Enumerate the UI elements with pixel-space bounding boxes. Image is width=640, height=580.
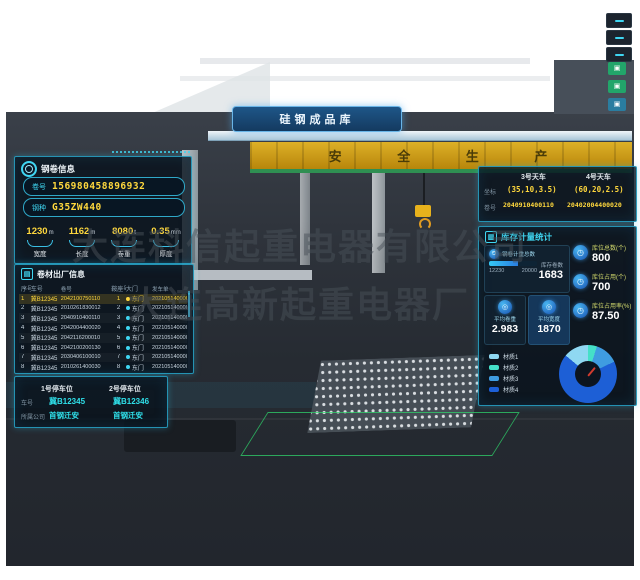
stat-unit: t bbox=[134, 230, 136, 236]
table-row[interactable]: 8冀B1234520102614000308东门2021051400001 bbox=[19, 362, 187, 372]
coil-stat-weight: 8080t 卷重 bbox=[103, 221, 145, 258]
crane-coil: 2040910400110 bbox=[503, 201, 554, 209]
coil-icon: ◎ bbox=[542, 300, 556, 314]
coil-info-panel: 钢卷信息 卷号 156980458896932 钢种 G35ZW440 1230… bbox=[14, 156, 192, 264]
stat-value: 1230 bbox=[26, 226, 47, 237]
table-cell: 冀B12345 bbox=[31, 324, 61, 333]
table-cell: 2010261400030 bbox=[61, 364, 111, 370]
field-label: 钢种 bbox=[32, 203, 46, 213]
legend-swatch bbox=[489, 354, 499, 359]
row-label: 所属公司 bbox=[21, 412, 45, 421]
coil-stat-thickness: 0.35mm 厚度 bbox=[145, 221, 187, 258]
table-cell: 4 bbox=[19, 325, 31, 331]
count-value: 1683 bbox=[537, 269, 563, 281]
stat-unit: m bbox=[49, 230, 54, 236]
avg-weight-card: ◎ 平均卷重 2.983 bbox=[484, 295, 526, 345]
material-donut-chart bbox=[559, 345, 617, 403]
bar-chart-icon: ▥ bbox=[485, 231, 497, 243]
table-cell: 2042116200010 bbox=[61, 335, 111, 341]
table-cell: 东门 bbox=[126, 363, 152, 372]
stat-value: 700 bbox=[592, 281, 626, 293]
table-cell: 2021051400001 bbox=[152, 354, 187, 360]
count-label: 库存卷数 bbox=[537, 261, 563, 269]
stat-value: 87.50 bbox=[592, 310, 631, 322]
scene-marker-icon[interactable]: ▣ bbox=[608, 98, 626, 111]
arc-gauge-icon bbox=[69, 240, 95, 247]
toolbar-button[interactable] bbox=[606, 47, 632, 62]
legend-label: 材质3 bbox=[503, 374, 518, 383]
avg-width-card: ◎ 平均宽度 1870 bbox=[528, 295, 570, 345]
coil-weight-card: ⏲ 钢卷计重总数 12230 20000 库存卷数 1683 bbox=[484, 245, 570, 293]
stat-unit: mm bbox=[171, 230, 181, 236]
clock-icon: ◷ bbox=[573, 274, 588, 289]
menu-icon bbox=[615, 20, 624, 22]
stat-unit: m bbox=[90, 230, 95, 236]
slot-title: 1号停车位 bbox=[41, 384, 73, 394]
clipboard-icon: ▤ bbox=[21, 268, 33, 280]
card-value: 2.983 bbox=[485, 323, 525, 335]
table-cell: 冀B12345 bbox=[31, 314, 61, 323]
scrollbar-thumb[interactable] bbox=[188, 291, 191, 317]
arc-gauge-icon bbox=[27, 240, 53, 247]
table-cell: 3 bbox=[111, 315, 126, 321]
table-cell: 东门 bbox=[126, 353, 152, 362]
table-cell: 2040910400110 bbox=[61, 315, 111, 321]
weight-icon: ⏲ bbox=[489, 249, 499, 259]
col-header: 鞍座号 bbox=[111, 284, 126, 293]
table-cell: 2 bbox=[111, 305, 126, 311]
table-cell: 7 bbox=[19, 354, 31, 360]
legend-swatch bbox=[489, 376, 499, 381]
table-cell: 东门 bbox=[126, 294, 152, 303]
arc-gauge-icon bbox=[111, 240, 137, 247]
panel-decoration bbox=[112, 151, 190, 153]
table-row[interactable]: 4冀B1234520420044000204东门2021051400001 bbox=[19, 323, 187, 333]
table-cell: 冀B12345 bbox=[31, 333, 61, 342]
stat-label: 库位占用率(%) bbox=[592, 301, 631, 310]
storage-zone-outline bbox=[240, 412, 519, 456]
col-header: 大门 bbox=[126, 284, 152, 293]
stat-value: 8080 bbox=[112, 226, 133, 237]
parking-panel: 1号停车位 2号停车位 车号 所属公司 冀B12345 冀B12346 首钢迁安… bbox=[14, 376, 168, 428]
clock-icon: ◷ bbox=[573, 245, 588, 260]
slot-total-stat: ◷ 库位总数(个) 800 bbox=[573, 243, 633, 264]
table-cell: 2021051400001 bbox=[152, 296, 187, 302]
crane-name: 4号天车 bbox=[586, 172, 611, 182]
arc-gauge-icon bbox=[153, 240, 179, 247]
clock-icon: ◷ bbox=[573, 303, 588, 318]
stat-value: 800 bbox=[592, 252, 626, 264]
crane-coil: 20402004400020 bbox=[567, 201, 622, 209]
legend-item: 材质1 bbox=[489, 351, 518, 362]
table-cell: 5 bbox=[19, 335, 31, 341]
table-cell: 2021051400001 bbox=[152, 325, 187, 331]
legend-label: 材质2 bbox=[503, 363, 518, 372]
crane-name: 3号天车 bbox=[521, 172, 546, 182]
company-value: 首钢迁安 bbox=[49, 410, 79, 421]
col-header: 车号 bbox=[31, 284, 61, 293]
banner-title: 硅钢成品库 bbox=[280, 111, 355, 127]
table-cell: 2021051400001 bbox=[152, 345, 187, 351]
table-row[interactable]: 3冀B1234520409104001103东门2021051400001 bbox=[19, 313, 187, 323]
scene-marker-icon[interactable]: ▣ bbox=[608, 80, 626, 93]
location-pin-icon bbox=[126, 316, 130, 320]
table-cell: 2030406100010 bbox=[61, 354, 111, 360]
table-cell: 冀B12345 bbox=[31, 343, 61, 352]
table-cell: 冀B12345 bbox=[31, 353, 61, 362]
plate-value: 冀B12346 bbox=[113, 396, 149, 407]
table-cell: 东门 bbox=[126, 343, 152, 352]
inventory-stats-panel: ▥ 库存计量统计 ⏲ 钢卷计重总数 12230 20000 库存卷数 168 bbox=[478, 226, 637, 406]
table-cell: 3 bbox=[19, 315, 31, 321]
table-header: 序号 车号 卷号 鞍座号 大门 发车单 bbox=[19, 284, 187, 294]
legend-swatch bbox=[489, 365, 499, 370]
panel-title: 卷材出厂信息 bbox=[37, 269, 85, 280]
crane-status-panel: 3号天车 4号天车 坐标 卷号 (35,10,3.5) (60,20,2.5) … bbox=[478, 166, 637, 222]
location-pin-icon bbox=[126, 306, 130, 310]
table-row[interactable]: 5冀B1234520421162000105东门2021051400001 bbox=[19, 333, 187, 343]
stat-label: 库位占用(个) bbox=[592, 272, 626, 281]
table-cell: 8 bbox=[111, 364, 126, 370]
table-row[interactable]: 2冀B1234520102618300122东门2021051400001 bbox=[19, 304, 187, 314]
stat-label: 库位总数(个) bbox=[592, 243, 626, 252]
table-cell: 东门 bbox=[126, 324, 152, 333]
table-cell: 东门 bbox=[126, 333, 152, 342]
table-cell: 东门 bbox=[126, 304, 152, 313]
table-cell: 2042004400020 bbox=[61, 325, 111, 331]
table-row[interactable]: 6冀B1234520421002001306东门2021051400001 bbox=[19, 343, 187, 353]
menu-icon bbox=[615, 37, 624, 39]
table-cell: 冀B12345 bbox=[31, 294, 61, 303]
table-cell: 7 bbox=[111, 354, 126, 360]
card-label: 钢卷计重总数 bbox=[502, 250, 535, 258]
table-cell: 2021051400001 bbox=[152, 315, 187, 321]
shipment-panel: ▤ 卷材出厂信息 序号 车号 卷号 鞍座号 大门 发车单 1冀B12345204… bbox=[14, 264, 194, 374]
card-label: 平均卷重 bbox=[485, 315, 525, 323]
stat-label: 长度 bbox=[61, 248, 103, 258]
legend-item: 材质4 bbox=[489, 384, 518, 395]
coil-stat-length: 1162m 长度 bbox=[61, 221, 103, 258]
material-legend: 材质1材质2材质3材质4 bbox=[489, 351, 518, 395]
table-cell: 5 bbox=[111, 335, 126, 341]
location-pin-icon bbox=[126, 326, 130, 330]
company-value: 首钢迁安 bbox=[113, 410, 143, 421]
row-label: 车号 bbox=[21, 398, 33, 407]
hoist-cable bbox=[423, 173, 425, 206]
col-header: 卷号 bbox=[61, 285, 111, 293]
coil-icon: ◎ bbox=[498, 300, 512, 314]
table-cell: 2021051400001 bbox=[152, 335, 187, 341]
panel-title: 钢卷信息 bbox=[41, 163, 75, 175]
plate-value: 冀B12345 bbox=[49, 396, 85, 407]
hoist-block bbox=[415, 205, 431, 217]
field-value: 156980458896932 bbox=[52, 181, 145, 192]
walkway-beam bbox=[190, 270, 312, 280]
table-row[interactable]: 7冀B1234520304061000107东门2021051400001 bbox=[19, 353, 187, 363]
bar-min: 12230 bbox=[489, 268, 504, 274]
location-pin-icon bbox=[126, 336, 130, 340]
stat-label: 卷重 bbox=[103, 248, 145, 258]
col-header: 序号 bbox=[19, 284, 31, 293]
table-cell: 6 bbox=[19, 345, 31, 351]
table-cell: 4 bbox=[111, 325, 126, 331]
legend-item: 材质3 bbox=[489, 373, 518, 384]
table-cell: 1 bbox=[19, 296, 31, 302]
field-label: 卷号 bbox=[32, 182, 46, 192]
row-label: 坐标 bbox=[484, 187, 496, 196]
stat-label: 厚度 bbox=[145, 248, 187, 258]
table-cell: 2042100750110 bbox=[61, 296, 111, 302]
weight-progress-fill bbox=[489, 261, 518, 266]
location-pin-icon bbox=[126, 355, 130, 359]
stat-label: 宽度 bbox=[19, 248, 61, 258]
table-scrollbar[interactable] bbox=[188, 291, 191, 369]
crane-coord: (60,20,2.5) bbox=[574, 185, 624, 194]
location-pin-icon bbox=[126, 297, 130, 301]
weight-progress-bar bbox=[489, 261, 537, 266]
table-cell: 东门 bbox=[126, 314, 152, 323]
toolbar-button[interactable] bbox=[606, 30, 632, 45]
card-label: 平均宽度 bbox=[529, 315, 569, 323]
table-cell: 8 bbox=[19, 364, 31, 370]
table-cell: 2010261830012 bbox=[61, 305, 111, 311]
field-value: G35ZW440 bbox=[52, 202, 102, 213]
safety-slogan: 安 全 生 产 bbox=[329, 146, 574, 165]
slot-used-stat: ◷ 库位占用(个) 700 bbox=[573, 272, 633, 293]
table-row[interactable]: 1冀B1234520421007501101东门2021051400001 bbox=[19, 294, 187, 304]
table-cell: 1 bbox=[111, 296, 126, 302]
roof-truss bbox=[200, 58, 530, 64]
legend-swatch bbox=[489, 387, 499, 392]
legend-item: 材质2 bbox=[489, 362, 518, 373]
coil-number-field: 卷号 156980458896932 bbox=[23, 177, 185, 196]
coil-stat-width: 1230m 宽度 bbox=[19, 221, 61, 258]
coil-icon bbox=[21, 161, 37, 177]
table-cell: 6 bbox=[111, 345, 126, 351]
table-cell: 2021051400001 bbox=[152, 305, 187, 311]
panel-title: 库存计量统计 bbox=[501, 231, 552, 243]
slot-rate-stat: ◷ 库位占用率(%) 87.50 bbox=[573, 301, 633, 322]
table-cell: 2042100200130 bbox=[61, 345, 111, 351]
stat-value: 0.35 bbox=[151, 226, 170, 237]
bar-max: 20000 bbox=[522, 268, 537, 274]
menu-icon bbox=[615, 54, 624, 56]
legend-label: 材质1 bbox=[503, 352, 518, 361]
table-cell: 冀B12345 bbox=[31, 304, 61, 313]
col-header: 发车单 bbox=[152, 285, 187, 293]
steel-column bbox=[372, 158, 385, 273]
scene-marker-icon[interactable]: ▣ bbox=[608, 62, 626, 75]
crane-coord: (35,10,3.5) bbox=[507, 185, 557, 194]
crane-hook-icon bbox=[419, 218, 431, 230]
legend-label: 材质4 bbox=[503, 385, 518, 394]
toolbar-button[interactable] bbox=[606, 13, 632, 28]
warehouse-title-banner: 硅钢成品库 bbox=[232, 106, 402, 132]
steel-grade-field: 钢种 G35ZW440 bbox=[23, 198, 185, 217]
card-value: 1870 bbox=[529, 323, 569, 335]
row-label: 卷号 bbox=[484, 203, 496, 212]
table-cell: 冀B12345 bbox=[31, 363, 61, 372]
steel-column bbox=[300, 165, 310, 265]
crane-bridge bbox=[208, 131, 632, 141]
stat-value: 1162 bbox=[69, 226, 90, 237]
application-window: 硅钢成品库 安 全 生 产 ▣ ▣ ▣ 大连科信起重电器有限公司 大连高新起重电… bbox=[0, 0, 640, 580]
location-pin-icon bbox=[126, 365, 130, 369]
slot-title: 2号停车位 bbox=[109, 384, 141, 394]
table-cell: 2 bbox=[19, 305, 31, 311]
location-pin-icon bbox=[126, 346, 130, 350]
table-cell: 2021051400001 bbox=[152, 364, 187, 370]
